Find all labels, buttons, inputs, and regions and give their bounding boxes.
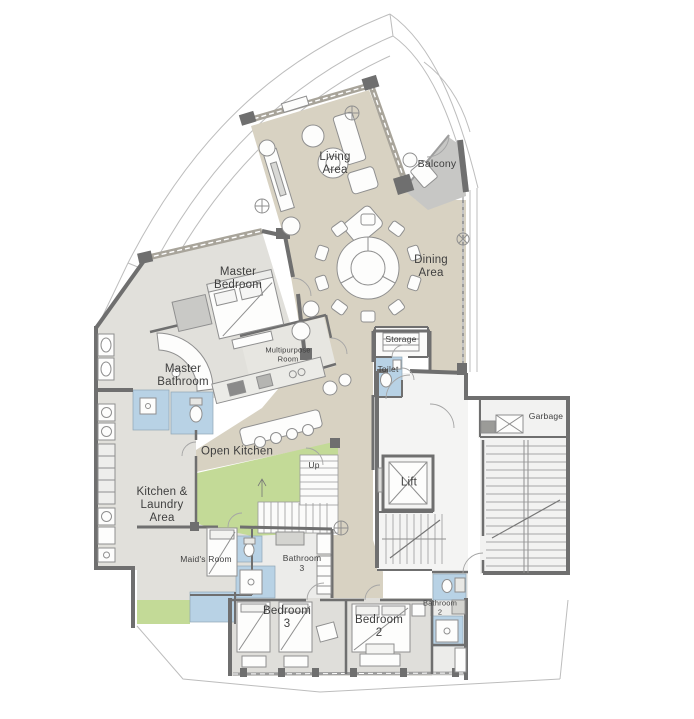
terrace-green bbox=[137, 600, 190, 624]
laundry-appliances bbox=[98, 404, 115, 562]
floor-plan-drawing bbox=[0, 0, 694, 719]
floor-plan: Living Area Balcony Dining Area Master B… bbox=[0, 0, 694, 719]
